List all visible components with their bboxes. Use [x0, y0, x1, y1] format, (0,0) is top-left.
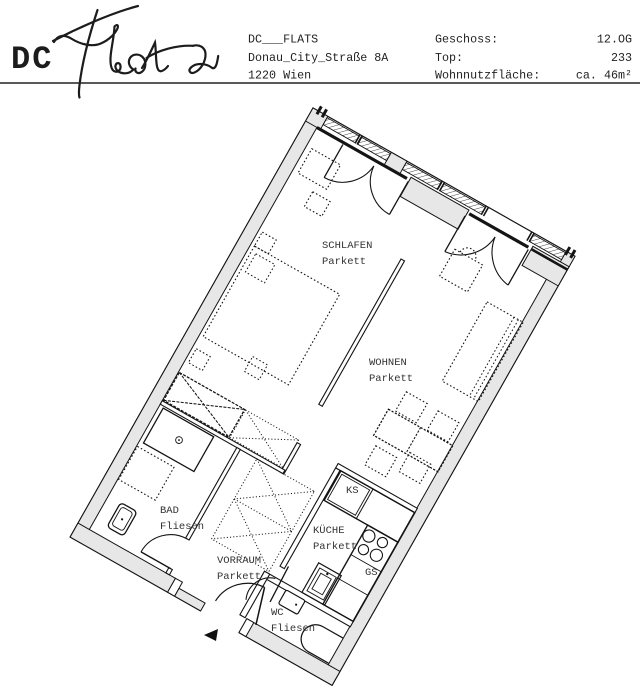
svg-text:Parkett: Parkett: [217, 571, 261, 583]
svg-text:Parkett: Parkett: [322, 256, 366, 268]
svg-text:KS: KS: [346, 485, 359, 497]
svg-text:WOHNEN: WOHNEN: [369, 357, 407, 369]
svg-text:Parkett: Parkett: [313, 541, 357, 553]
svg-text:SCHLAFEN: SCHLAFEN: [322, 240, 372, 252]
svg-text:WC: WC: [271, 607, 284, 619]
svg-text:Parkett: Parkett: [369, 373, 413, 385]
svg-text:VORRAUM: VORRAUM: [217, 555, 261, 567]
svg-text:KÜCHE: KÜCHE: [313, 524, 345, 537]
svg-text:GS: GS: [365, 567, 378, 579]
svg-text:BAD: BAD: [160, 505, 179, 517]
svg-text:Fliesen: Fliesen: [271, 623, 315, 635]
svg-text:Fliesen: Fliesen: [160, 521, 204, 533]
